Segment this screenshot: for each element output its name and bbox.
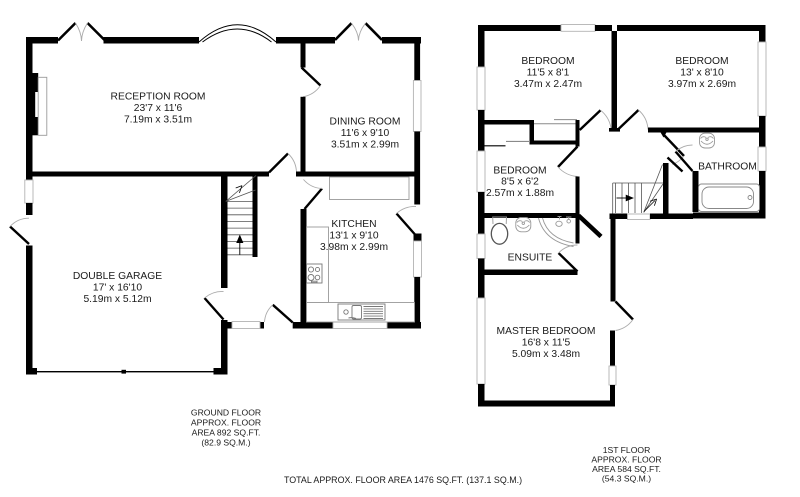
svg-text:RECEPTION ROOM: RECEPTION ROOM	[111, 92, 206, 103]
svg-text:DOUBLE GARAGE: DOUBLE GARAGE	[73, 271, 162, 282]
svg-text:13' x 8'10: 13' x 8'10	[680, 68, 724, 79]
svg-text:BEDROOM: BEDROOM	[493, 166, 546, 177]
svg-text:3.97m x 2.69m: 3.97m x 2.69m	[668, 79, 736, 90]
svg-text:BEDROOM: BEDROOM	[675, 56, 728, 67]
svg-text:ENSUITE: ENSUITE	[508, 253, 553, 264]
svg-text:11'6 x 9'10: 11'6 x 9'10	[341, 128, 390, 139]
svg-text:23'7 x 11'6: 23'7 x 11'6	[134, 103, 183, 114]
svg-text:BATHROOM: BATHROOM	[698, 162, 757, 173]
svg-text:11'5 x 8'1: 11'5 x 8'1	[527, 68, 570, 79]
svg-text:7.19m x 3.51m: 7.19m x 3.51m	[124, 115, 192, 126]
svg-text:3.98m x 2.99m: 3.98m x 2.99m	[320, 242, 388, 253]
svg-text:2.57m x 1.88m: 2.57m x 1.88m	[486, 188, 554, 199]
svg-text:(54.3 SQ.M.): (54.3 SQ.M.)	[602, 474, 651, 484]
svg-text:13'1 x 9'10: 13'1 x 9'10	[329, 231, 378, 242]
svg-text:16'8 x 11'5: 16'8 x 11'5	[522, 338, 571, 349]
svg-text:3.47m x 2.47m: 3.47m x 2.47m	[514, 79, 582, 90]
svg-text:APPROX. FLOOR: APPROX. FLOOR	[191, 418, 261, 428]
svg-text:5.09m x 3.48m: 5.09m x 3.48m	[512, 349, 580, 360]
svg-text:APPROX. FLOOR: APPROX. FLOOR	[591, 455, 661, 465]
svg-text:AREA 892 SQ.FT.: AREA 892 SQ.FT.	[192, 428, 261, 438]
svg-text:AREA 584 SQ.FT.: AREA 584 SQ.FT.	[592, 464, 661, 474]
svg-text:(82.9 SQ.M.): (82.9 SQ.M.)	[201, 438, 250, 448]
svg-text:MASTER BEDROOM: MASTER BEDROOM	[497, 326, 596, 337]
svg-text:17' x 16'10: 17' x 16'10	[93, 283, 142, 294]
svg-text:KITCHEN: KITCHEN	[331, 219, 376, 230]
svg-text:3.51m x 2.99m: 3.51m x 2.99m	[331, 140, 399, 151]
svg-text:TOTAL APPROX. FLOOR AREA 1476: TOTAL APPROX. FLOOR AREA 1476 SQ.FT. (13…	[284, 475, 522, 485]
svg-text:GROUND FLOOR: GROUND FLOOR	[191, 408, 261, 418]
svg-text:5.19m x 5.12m: 5.19m x 5.12m	[83, 294, 151, 305]
svg-text:BEDROOM: BEDROOM	[521, 56, 574, 67]
svg-text:1ST FLOOR: 1ST FLOOR	[603, 445, 651, 455]
svg-text:DINING ROOM: DINING ROOM	[330, 117, 401, 128]
svg-text:8'5 x 6'2: 8'5 x 6'2	[501, 177, 539, 188]
